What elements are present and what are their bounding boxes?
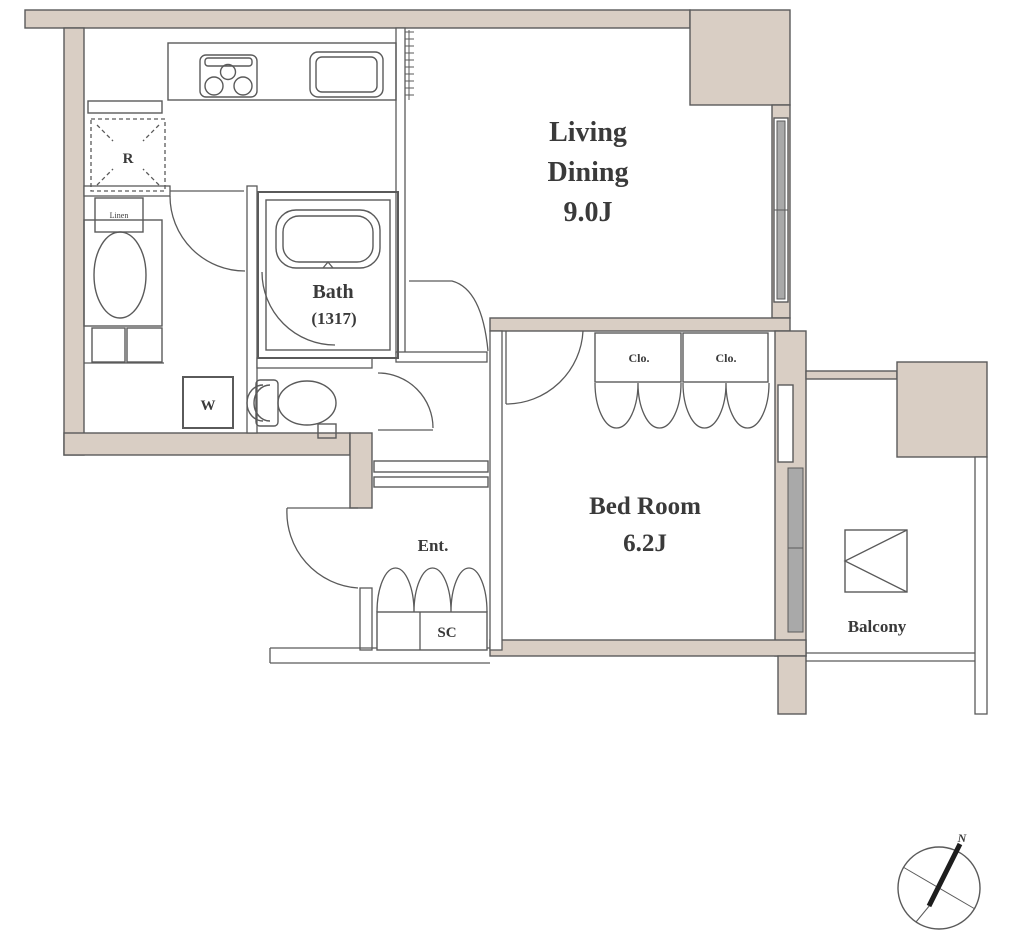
wall-hall-bottom [396,352,487,362]
wall-balcony-top [806,371,897,379]
wall-toilet-top [257,358,372,368]
entrance: Ent. SC [287,461,488,650]
washing-machine: W [183,377,233,428]
wall-top-right-block [690,10,790,105]
balcony-label: Balcony [848,617,907,636]
entrance-step-upper [374,461,488,472]
shoe-closet-box [377,612,487,650]
bathtub-inner [283,216,373,262]
compass: N [898,831,980,929]
wall-top [25,10,690,28]
kitchen: R [88,30,414,191]
shoe-closet-label: SC [437,625,456,641]
wall-bedroom-bottom [490,640,806,656]
bedroom-door-arc [506,331,583,404]
bedroom-small-window [778,385,793,462]
ac-unit-outline [845,530,907,592]
compass-needle-tail [916,905,930,922]
stove-burner [221,65,236,80]
bath-label: Bath [312,281,353,303]
wall-balcony-left-stub [778,656,806,714]
wall-balcony-right [975,457,987,714]
entrance-step-lower [374,477,488,487]
wall-entrance-left [350,433,372,508]
wall-bedroom-left [490,331,502,650]
washroom-cabinet-right [127,328,162,362]
toilet-room [247,373,433,438]
closet-folding-doors [595,383,769,428]
ac-unit-icon [845,530,907,592]
refrigerator-space: R [91,119,165,191]
living-hall-door [409,281,488,351]
stove-outline [200,55,257,97]
sink-outer [310,52,383,97]
kitchen-counter-end [88,101,162,113]
stove-burner [205,77,223,95]
entrance-door-arc [287,508,358,588]
bedroom-size-label: 6.2J [623,530,667,557]
bath-outer-wall [258,192,398,358]
washroom: Linen W [84,191,245,428]
refrigerator-label: R [123,151,134,167]
washbasin-icon [94,232,146,318]
toilet-bowl-icon [278,381,336,425]
bathtub-drain-mark [323,262,333,268]
wall-left [64,28,84,455]
sink-icon [310,52,383,97]
washing-machine-label: W [201,398,216,414]
closet-left-label: Clo. [629,351,650,365]
entrance-label: Ent. [418,536,449,555]
linen-label: Linen [110,211,129,220]
wall-bottom-left [64,433,350,455]
sink-inner [316,57,377,92]
living-label-line1: Living [549,117,627,148]
wall-living-bottom [490,318,790,331]
bedroom-label: Bed Room [589,493,701,520]
toilet-door-arc [378,373,433,428]
balcony: Balcony [845,530,907,636]
living-dining-room: Living Dining 9.0J [548,117,629,228]
compass-needle-icon [929,844,960,906]
wall-balcony-pillar [897,362,987,457]
stove-burner [234,77,252,95]
bathtub-icon [276,210,380,268]
bathroom: Bath (1317) [258,192,398,358]
living-size-label: 9.0J [564,197,613,228]
ac-unit-triangle [845,530,907,592]
washroom-cabinet-left [92,328,125,362]
stove-icon [200,55,257,97]
vanity-counter [84,220,162,326]
bedroom-sliding-window-glass [788,468,803,632]
balcony-bottom-edge [806,653,975,661]
shoe-closet-folding-doors [377,568,487,612]
toilet-tank [256,380,278,426]
kitchen-screen-hatch [405,30,414,100]
floor-plan-drawing: R Linen W Bath (1317) [0,0,1024,948]
compass-north-label: N [957,831,968,845]
washroom-door-arc [170,196,245,271]
living-label-line2: Dining [548,157,629,188]
closet-right-label: Clo. [716,351,737,365]
closets: Clo. Clo. [595,333,769,428]
bath-size-label: (1317) [311,309,356,328]
wall-entrance-left-stub [360,588,372,650]
floor-plan-page: R Linen W Bath (1317) [0,0,1024,948]
